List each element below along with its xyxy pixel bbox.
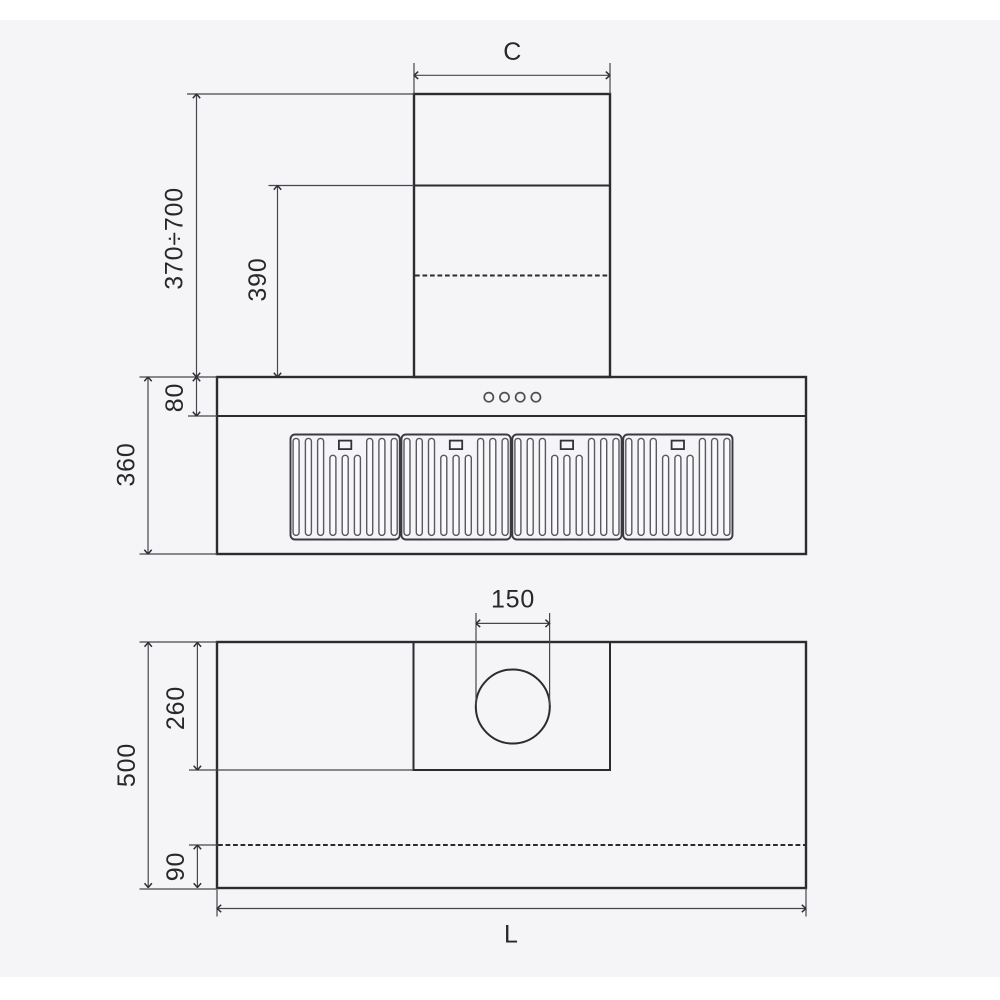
- svg-text:150: 150: [491, 586, 535, 614]
- svg-text:370÷700: 370÷700: [160, 187, 188, 290]
- svg-text:90: 90: [162, 852, 190, 881]
- svg-text:C: C: [503, 38, 521, 66]
- svg-text:390: 390: [244, 257, 272, 301]
- svg-text:L: L: [504, 921, 518, 949]
- svg-text:360: 360: [112, 442, 140, 486]
- svg-text:500: 500: [113, 743, 141, 787]
- svg-text:260: 260: [162, 686, 190, 730]
- svg-text:80: 80: [161, 383, 189, 412]
